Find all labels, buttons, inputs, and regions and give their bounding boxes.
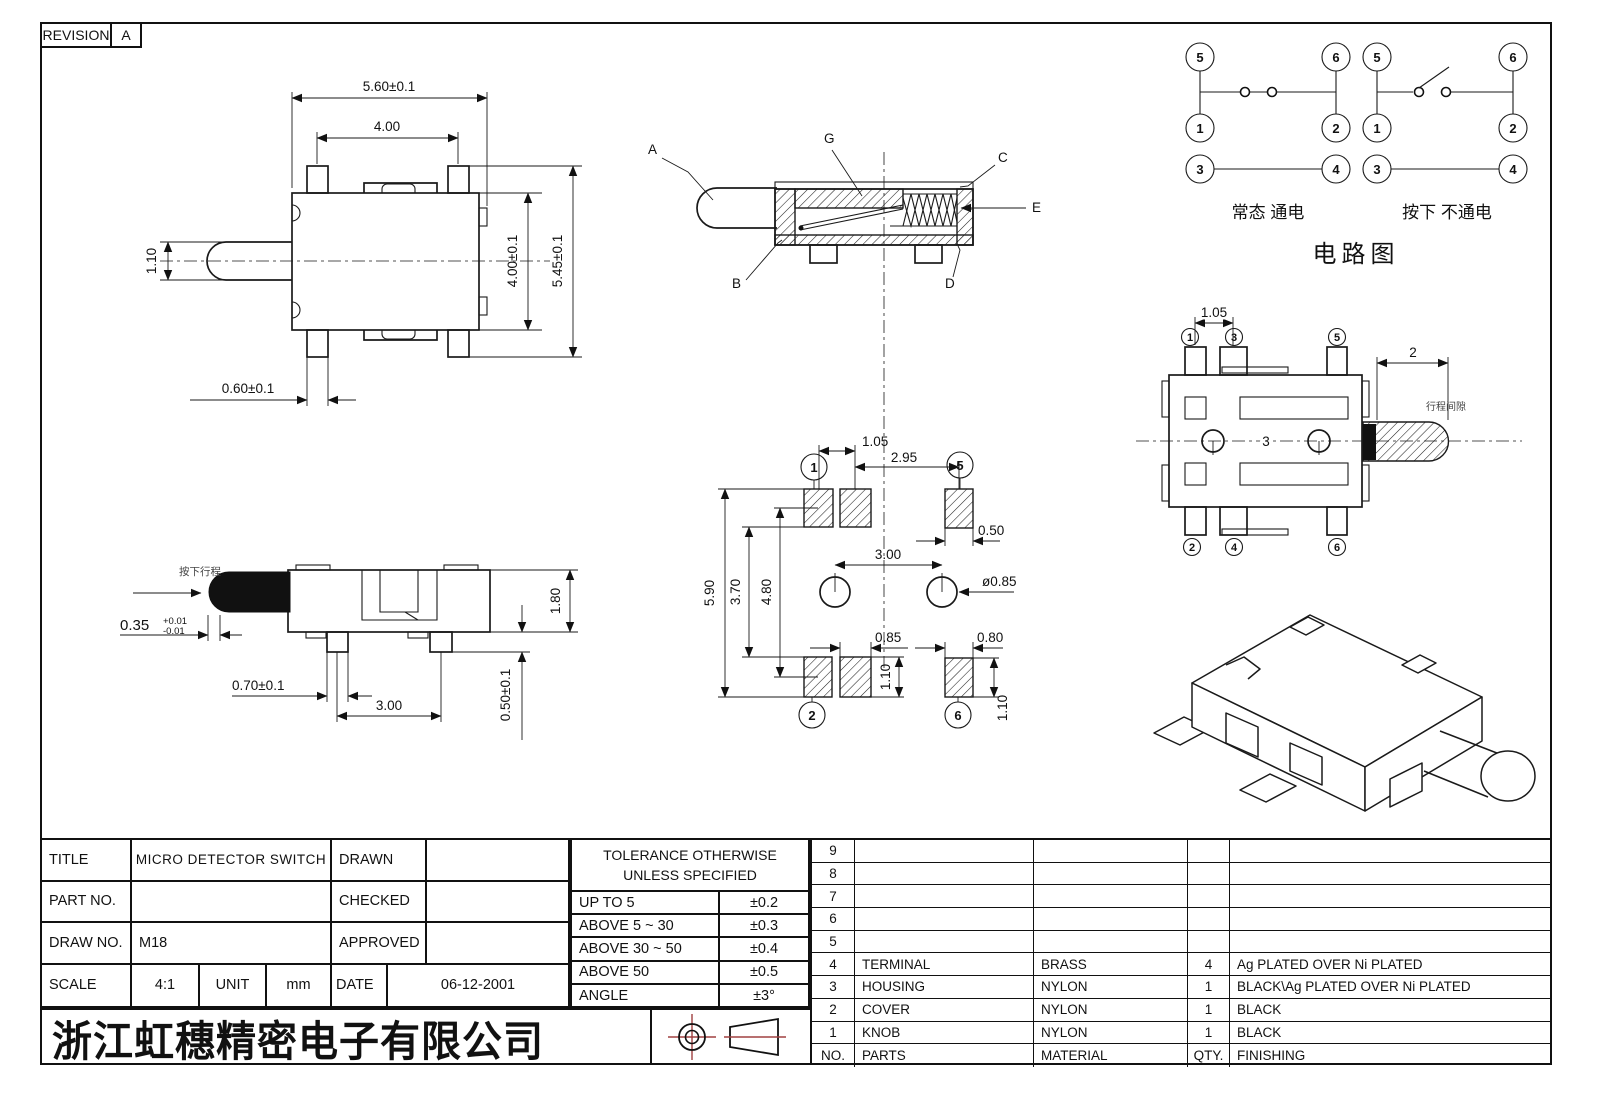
draw-no-value: M18 (132, 923, 332, 965)
terminal (915, 245, 942, 263)
dim-pin-width: 0.60±0.1 (222, 381, 274, 396)
pin-number: 5 (1196, 50, 1203, 65)
pin-number: 4 (1509, 162, 1517, 177)
dim-width-inner: 4.00 (374, 119, 400, 134)
dim-pads-center-height: 4.80 (759, 579, 774, 605)
dim-pin-pitch: 1.05 (1201, 305, 1227, 320)
pin-number: 5 (956, 458, 963, 473)
part-finishing (1230, 885, 1550, 908)
part-name (855, 885, 1034, 908)
pin (1185, 507, 1206, 535)
tol-value: ±0.3 (720, 915, 808, 938)
part-material (1034, 931, 1188, 954)
part-finishing (1230, 908, 1550, 931)
pin (1185, 347, 1206, 375)
part-finishing: BLACK (1230, 1022, 1550, 1045)
middle-bump-bottom (382, 330, 415, 339)
part-material (1034, 863, 1188, 886)
pin-number: 1 (1187, 332, 1193, 344)
header-parts: PARTS (855, 1044, 1034, 1067)
housing-bottom (775, 235, 973, 245)
contact-point (1442, 88, 1451, 97)
projection-symbol-cell (650, 1008, 810, 1065)
title-block: TITLE MICRO DETECTOR SWITCH DRAWN PART N… (40, 838, 570, 1008)
part-name (855, 863, 1034, 886)
cover-plate (775, 182, 973, 189)
pin (448, 166, 469, 193)
title-label: TITLE (42, 840, 132, 882)
part-material: NYLON (1034, 976, 1188, 999)
pin-number: 4 (1332, 162, 1340, 177)
part-name: HOUSING (855, 976, 1034, 999)
scale-label: SCALE (42, 965, 132, 1007)
pad (945, 489, 973, 528)
circuit-pressed: 5 6 1 2 3 4 按下 不通电 (1363, 43, 1527, 222)
tol-value: ±0.2 (720, 892, 808, 915)
part-qty (1188, 885, 1230, 908)
pad (840, 489, 871, 527)
part-name (855, 840, 1034, 863)
drawn-label: DRAWN (332, 840, 427, 882)
lever-pivot (799, 226, 804, 231)
right-tab-top (479, 208, 487, 226)
part-no: 1 (812, 1022, 855, 1045)
part-name: TERMINAL (855, 953, 1034, 976)
part-qty: 4 (1188, 953, 1230, 976)
company-name: 浙江虹穗精密电子有限公司 (40, 1007, 544, 1068)
label-base: B (732, 276, 741, 291)
part-qty: 1 (1188, 999, 1230, 1022)
scale-value: 4:1 (132, 965, 200, 1007)
tol-value: ±0.4 (720, 938, 808, 961)
section-view: A G C E B D (620, 110, 1050, 355)
part-material (1034, 885, 1188, 908)
dim-pad-pitch-wide: 2.95 (891, 450, 917, 465)
pin-number: 6 (1332, 50, 1339, 65)
label-cover: G (824, 131, 835, 146)
dim-pad-height-bottom: 1.10 (878, 664, 893, 690)
pin (307, 330, 328, 357)
dim-body-height: 1.80 (548, 588, 563, 614)
pin-number: 5 (1373, 50, 1380, 65)
dim-height-inner: 4.00±0.1 (505, 235, 520, 287)
part-no: 3 (812, 976, 855, 999)
approved-label: APPROVED (332, 923, 427, 965)
dim-knob-length: 2 (1409, 345, 1417, 360)
part-qty (1188, 908, 1230, 931)
dim-standoff: 0.50±0.1 (498, 669, 513, 721)
dim-pad-width-bottom: 0.85 (875, 630, 901, 645)
pin-number: 6 (1334, 542, 1340, 554)
title-value: MICRO DETECTOR SWITCH (132, 840, 332, 882)
part-material (1034, 840, 1188, 863)
pin (448, 330, 469, 357)
knob-base (1363, 424, 1376, 460)
engineering-drawing-page: { "revision": {"label": "REVISION", "val… (0, 0, 1600, 1100)
foot (1240, 774, 1296, 802)
contact-point (1415, 88, 1424, 97)
side-view: 按下行程 0.35 +0.01 -0.01 0.70±0.1 3.00 1.80… (100, 545, 600, 785)
travel-gap-note: 行程间隙 (1426, 400, 1466, 413)
part-no: 9 (812, 840, 855, 863)
part-qty (1188, 840, 1230, 863)
terminal (810, 245, 837, 263)
revision-box: REVISION A (40, 22, 142, 48)
dim-boss-pitch: 3 (1262, 434, 1270, 449)
dim-height-outer: 5.45±0.1 (550, 235, 565, 287)
circuit-normal: 5 6 1 2 3 4 常态 通电 (1186, 43, 1350, 222)
unit-label: UNIT (200, 965, 267, 1007)
header-finishing: FINISHING (1230, 1044, 1550, 1067)
dim-hole-diameter: ø0.85 (982, 574, 1017, 589)
notch-bottom-left (292, 302, 300, 318)
right-tab-bottom (479, 297, 487, 315)
part-name (855, 931, 1034, 954)
pin (1220, 507, 1247, 535)
pin-number: 3 (1373, 162, 1380, 177)
notch-top-left (292, 205, 300, 221)
revision-value: A (110, 22, 142, 48)
approved-value (427, 923, 568, 965)
header-material: MATERIAL (1034, 1044, 1188, 1067)
part-name (855, 908, 1034, 931)
unit-value: mm (267, 965, 332, 1007)
date-label: DATE (332, 965, 388, 1007)
switch-body-outline (288, 570, 490, 632)
terminal (430, 632, 452, 652)
part-finishing: BLACK (1230, 999, 1550, 1022)
pin-number: 4 (1231, 542, 1238, 554)
part-no-value (132, 882, 332, 924)
label-knob: A (648, 142, 657, 157)
knob-outline (697, 188, 777, 228)
contact-point (1241, 88, 1250, 97)
pin-number: 1 (1196, 121, 1203, 136)
circuit-pressed-caption: 按下 不通电 (1402, 203, 1492, 222)
pin (1327, 507, 1347, 535)
circuit-diagrams: 5 6 1 2 3 4 常态 通电 5 6 1 2 3 4 按下 不通电 电路图 (1150, 30, 1550, 280)
label-housing: C (998, 150, 1008, 165)
switch-body-outline (292, 193, 479, 330)
label-terminal: D (945, 276, 955, 291)
dim-pads-inner-height: 3.70 (728, 579, 743, 605)
dim-hole-pitch: 3.00 (875, 547, 901, 562)
tol-range: UP TO 5 (572, 892, 720, 915)
third-angle-projection-icon (652, 1010, 808, 1063)
pin-number: 5 (1334, 332, 1340, 344)
part-no: 4 (812, 953, 855, 976)
part-qty: 1 (1188, 1022, 1230, 1045)
pin-number: 1 (1373, 121, 1380, 136)
dim-width-outer: 5.60±0.1 (363, 79, 415, 94)
part-no: 8 (812, 863, 855, 886)
part-material (1034, 908, 1188, 931)
pin-number: 2 (1509, 121, 1516, 136)
open-switch-blade (1419, 67, 1449, 88)
knob-cylinder (1481, 751, 1535, 801)
pad (945, 658, 973, 697)
company-block: 浙江虹穗精密电子有限公司 (40, 1008, 650, 1065)
housing-wall-right (957, 189, 973, 245)
part-name: KNOB (855, 1022, 1034, 1045)
tolerance-header-2: UNLESS SPECIFIED (623, 865, 757, 885)
tol-value: ±0.5 (720, 962, 808, 985)
pin-number: 6 (1509, 50, 1516, 65)
part-finishing: BLACK\Ag PLATED OVER Ni PLATED (1230, 976, 1550, 999)
checked-label: CHECKED (332, 882, 427, 924)
dim-pad-width-br: 0.80 (977, 630, 1003, 645)
isometric-view (1140, 565, 1550, 815)
pin-number: 3 (1196, 162, 1203, 177)
dim-travel: 0.35 (120, 617, 149, 634)
pin-number: 2 (808, 708, 815, 723)
dim-knob-width: 1.10 (144, 248, 159, 274)
pad (840, 657, 871, 697)
dim-pad-height-br: 1.10 (995, 695, 1010, 721)
part-finishing (1230, 863, 1550, 886)
part-material: NYLON (1034, 1022, 1188, 1045)
part-no: 6 (812, 908, 855, 931)
drawn-value (427, 840, 568, 882)
part-qty: 1 (1188, 976, 1230, 999)
header-no: NO. (812, 1044, 855, 1067)
part-qty (1188, 931, 1230, 954)
pin-number: 6 (954, 708, 961, 723)
pad-layout-view: 1 5 2 6 1.05 2.95 0.50 3.00 ø0.85 5.90 3… (682, 415, 1047, 750)
dim-pad-width-top: 0.50 (978, 523, 1004, 538)
tolerance-header-1: TOLERANCE OTHERWISE (603, 845, 777, 865)
dim-pad-pitch: 1.05 (862, 434, 888, 449)
top-view: 5.60±0.1 4.00 1.10 4.00±0.1 5.45±0.1 0.6… (130, 60, 600, 420)
part-no: 2 (812, 999, 855, 1022)
pin-number: 2 (1332, 121, 1339, 136)
circuit-title: 电路图 (1313, 241, 1400, 268)
header-qty: QTY. (1188, 1044, 1230, 1067)
pin-number: 1 (810, 460, 817, 475)
pin (1327, 347, 1347, 375)
part-no: 5 (812, 931, 855, 954)
checked-value (427, 882, 568, 924)
part-name: COVER (855, 999, 1034, 1022)
circuit-normal-caption: 常态 通电 (1232, 203, 1305, 222)
part-finishing (1230, 931, 1550, 954)
part-finishing (1230, 840, 1550, 863)
revision-label: REVISION (40, 22, 110, 48)
pin-number: 3 (1231, 332, 1237, 344)
part-finishing: Ag PLATED OVER Ni PLATED (1230, 953, 1550, 976)
contact-point (1268, 88, 1277, 97)
part-qty (1188, 863, 1230, 886)
parts-table: 9 8 7 6 5 4TERMINALBRASS4Ag PLATED OVER … (810, 838, 1552, 1065)
dim-pads-outer-height: 5.90 (702, 580, 717, 606)
press-travel-note: 按下行程 (179, 565, 221, 578)
part-material: BRASS (1034, 953, 1188, 976)
tol-range: ANGLE (572, 985, 720, 1008)
pin (1220, 347, 1247, 375)
part-material: NYLON (1034, 999, 1188, 1022)
tol-range: ABOVE 5 ~ 30 (572, 915, 720, 938)
tol-value: ±3° (720, 985, 808, 1008)
dim-travel-minus: -0.01 (163, 626, 185, 637)
pin-number: 2 (1189, 542, 1195, 554)
date-value: 06-12-2001 (388, 965, 568, 1007)
part-no: 7 (812, 885, 855, 908)
middle-bump-top (382, 184, 415, 193)
part-no-label: PART NO. (42, 882, 132, 924)
dim-pin-width: 0.70±0.1 (232, 678, 284, 693)
knob-black (209, 572, 290, 612)
dim-pin-pitch: 3.00 (376, 698, 402, 713)
bottom-view: 1 3 5 2 4 6 1.05 2 3 行程间隙 (1120, 295, 1545, 580)
pin (307, 166, 328, 193)
terminal (327, 632, 348, 652)
tolerance-table: TOLERANCE OTHERWISE UNLESS SPECIFIED UP … (570, 838, 810, 1008)
tol-range: ABOVE 30 ~ 50 (572, 938, 720, 961)
tol-range: ABOVE 50 (572, 962, 720, 985)
draw-no-label: DRAW NO. (42, 923, 132, 965)
label-spring: E (1032, 200, 1041, 215)
